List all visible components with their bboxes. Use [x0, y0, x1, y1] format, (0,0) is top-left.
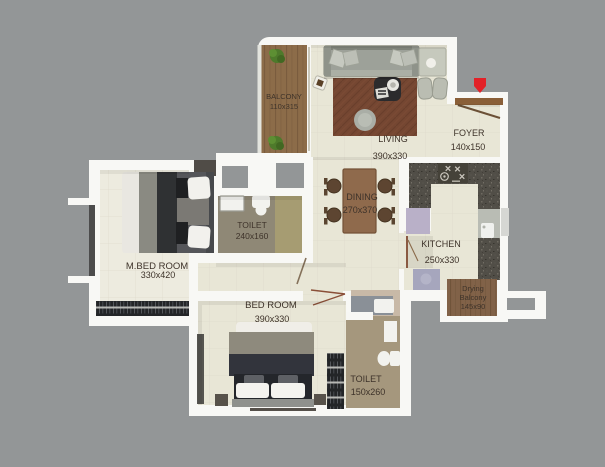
svg-text:270x370: 270x370: [343, 205, 378, 215]
svg-text:LIVING: LIVING: [378, 134, 408, 144]
svg-text:140x150: 140x150: [451, 142, 486, 152]
svg-text:330x420: 330x420: [141, 270, 176, 280]
svg-text:KITCHEN: KITCHEN: [421, 239, 461, 249]
svg-text:FOYER: FOYER: [453, 128, 485, 138]
svg-text:240x160: 240x160: [236, 231, 269, 241]
svg-text:110x315: 110x315: [270, 102, 298, 111]
svg-text:TOILET: TOILET: [237, 220, 267, 230]
svg-text:250x330: 250x330: [425, 255, 460, 265]
svg-text:DINING: DINING: [346, 192, 378, 202]
svg-text:BALCONY: BALCONY: [266, 92, 302, 101]
svg-text:Drying: Drying: [462, 284, 484, 293]
svg-text:Balcony: Balcony: [460, 293, 487, 302]
svg-text:150x260: 150x260: [351, 387, 386, 397]
svg-text:145x90: 145x90: [461, 302, 486, 311]
svg-text:TOILET: TOILET: [350, 374, 382, 384]
